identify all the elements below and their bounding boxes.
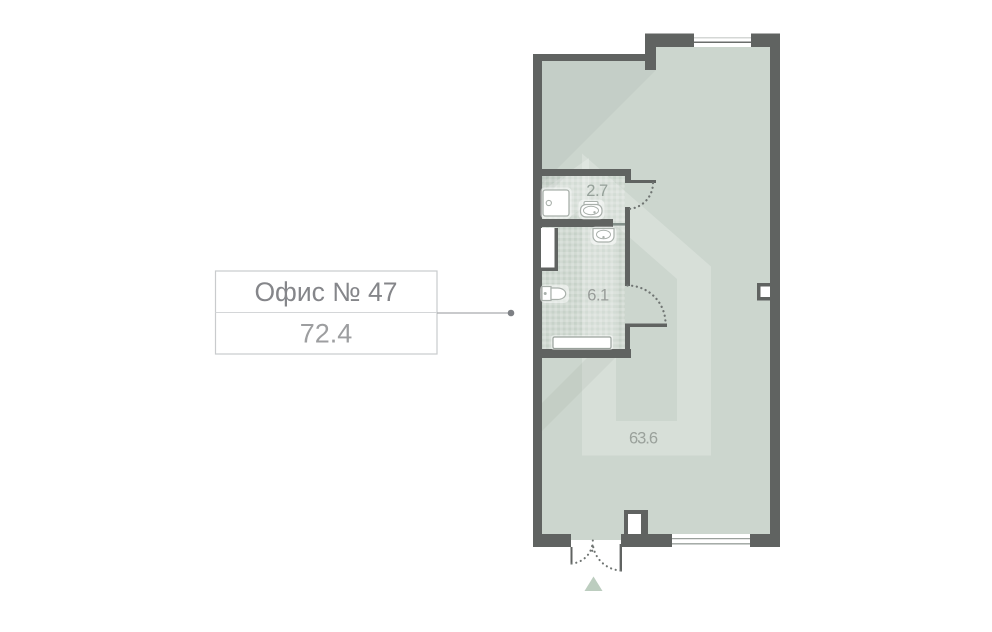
svg-text:2.7: 2.7 <box>586 182 608 200</box>
svg-text:Офис № 47: Офис № 47 <box>254 277 397 307</box>
svg-text:72.4: 72.4 <box>300 319 353 349</box>
svg-text:63.6: 63.6 <box>629 430 658 448</box>
svg-text:6.1: 6.1 <box>587 287 609 305</box>
